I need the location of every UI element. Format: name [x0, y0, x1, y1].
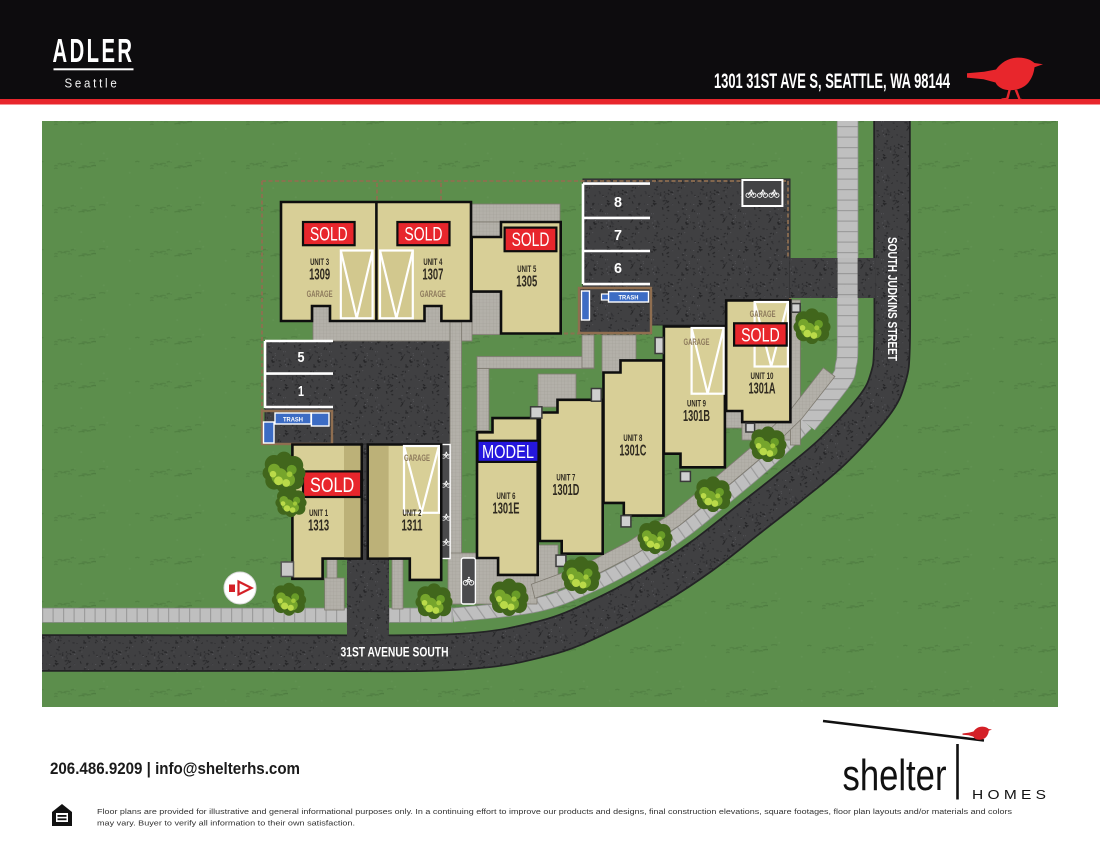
svg-text:SOLD: SOLD — [310, 224, 348, 245]
svg-text:GARAGE: GARAGE — [750, 309, 776, 319]
svg-text:UNIT 9: UNIT 9 — [687, 399, 706, 409]
svg-text:GARAGE: GARAGE — [684, 337, 710, 347]
svg-text:Seattle: Seattle — [65, 77, 120, 91]
svg-text:1309: 1309 — [309, 267, 330, 284]
svg-text:GARAGE: GARAGE — [420, 289, 446, 299]
svg-text:SOUTH JUDKINS STREET: SOUTH JUDKINS STREET — [885, 237, 900, 361]
svg-text:H O M E S: H O M E S — [972, 788, 1046, 802]
svg-text:UNIT 3: UNIT 3 — [310, 257, 329, 267]
svg-text:UNIT 8: UNIT 8 — [623, 433, 642, 443]
svg-text:1313: 1313 — [308, 518, 329, 535]
svg-text:UNIT 4: UNIT 4 — [423, 257, 442, 267]
svg-text:7: 7 — [614, 227, 622, 244]
svg-text:1301C: 1301C — [619, 443, 646, 460]
svg-text:UNIT 5: UNIT 5 — [517, 264, 536, 274]
svg-text:SOLD: SOLD — [741, 325, 780, 346]
svg-text:shelter: shelter — [843, 751, 947, 800]
svg-text:SOLD: SOLD — [310, 474, 354, 497]
svg-text:SOLD: SOLD — [512, 230, 550, 251]
svg-text:may vary. Buyer to verify all: may vary. Buyer to verify all informatio… — [97, 819, 355, 828]
svg-text:1301A: 1301A — [749, 380, 776, 397]
svg-text:1301 31ST AVE S, SEATTLE, WA 9: 1301 31ST AVE S, SEATTLE, WA 98144 — [714, 70, 950, 93]
svg-text:1311: 1311 — [402, 518, 423, 535]
svg-text:GARAGE: GARAGE — [404, 453, 430, 463]
svg-text:ADLER: ADLER — [53, 32, 135, 69]
svg-text:5: 5 — [298, 349, 305, 366]
svg-text:1: 1 — [298, 383, 304, 400]
svg-text:MODEL: MODEL — [482, 442, 534, 462]
svg-text:206.486.9209 | info@shelterhs.: 206.486.9209 | info@shelterhs.com — [50, 759, 300, 778]
svg-text:UNIT 6: UNIT 6 — [497, 491, 516, 501]
svg-text:1301B: 1301B — [683, 408, 710, 425]
svg-text:TRASH: TRASH — [283, 417, 303, 424]
svg-text:UNIT 2: UNIT 2 — [403, 508, 422, 518]
svg-text:UNIT 10: UNIT 10 — [751, 371, 774, 381]
svg-text:1307: 1307 — [422, 267, 443, 284]
svg-text:8: 8 — [614, 194, 622, 211]
svg-text:6: 6 — [614, 260, 622, 277]
svg-text:1305: 1305 — [516, 274, 537, 291]
svg-text:1301E: 1301E — [493, 501, 520, 518]
svg-text:TRASH: TRASH — [619, 295, 639, 302]
svg-text:GARAGE: GARAGE — [307, 289, 333, 299]
svg-text:31ST AVENUE SOUTH: 31ST AVENUE SOUTH — [341, 645, 449, 660]
svg-text:UNIT 7: UNIT 7 — [556, 473, 575, 483]
svg-text:UNIT 1: UNIT 1 — [309, 508, 328, 518]
svg-text:SOLD: SOLD — [404, 224, 442, 245]
svg-text:Floor plans are provided for i: Floor plans are provided for illustrativ… — [97, 807, 1012, 816]
svg-text:1301D: 1301D — [552, 482, 579, 499]
